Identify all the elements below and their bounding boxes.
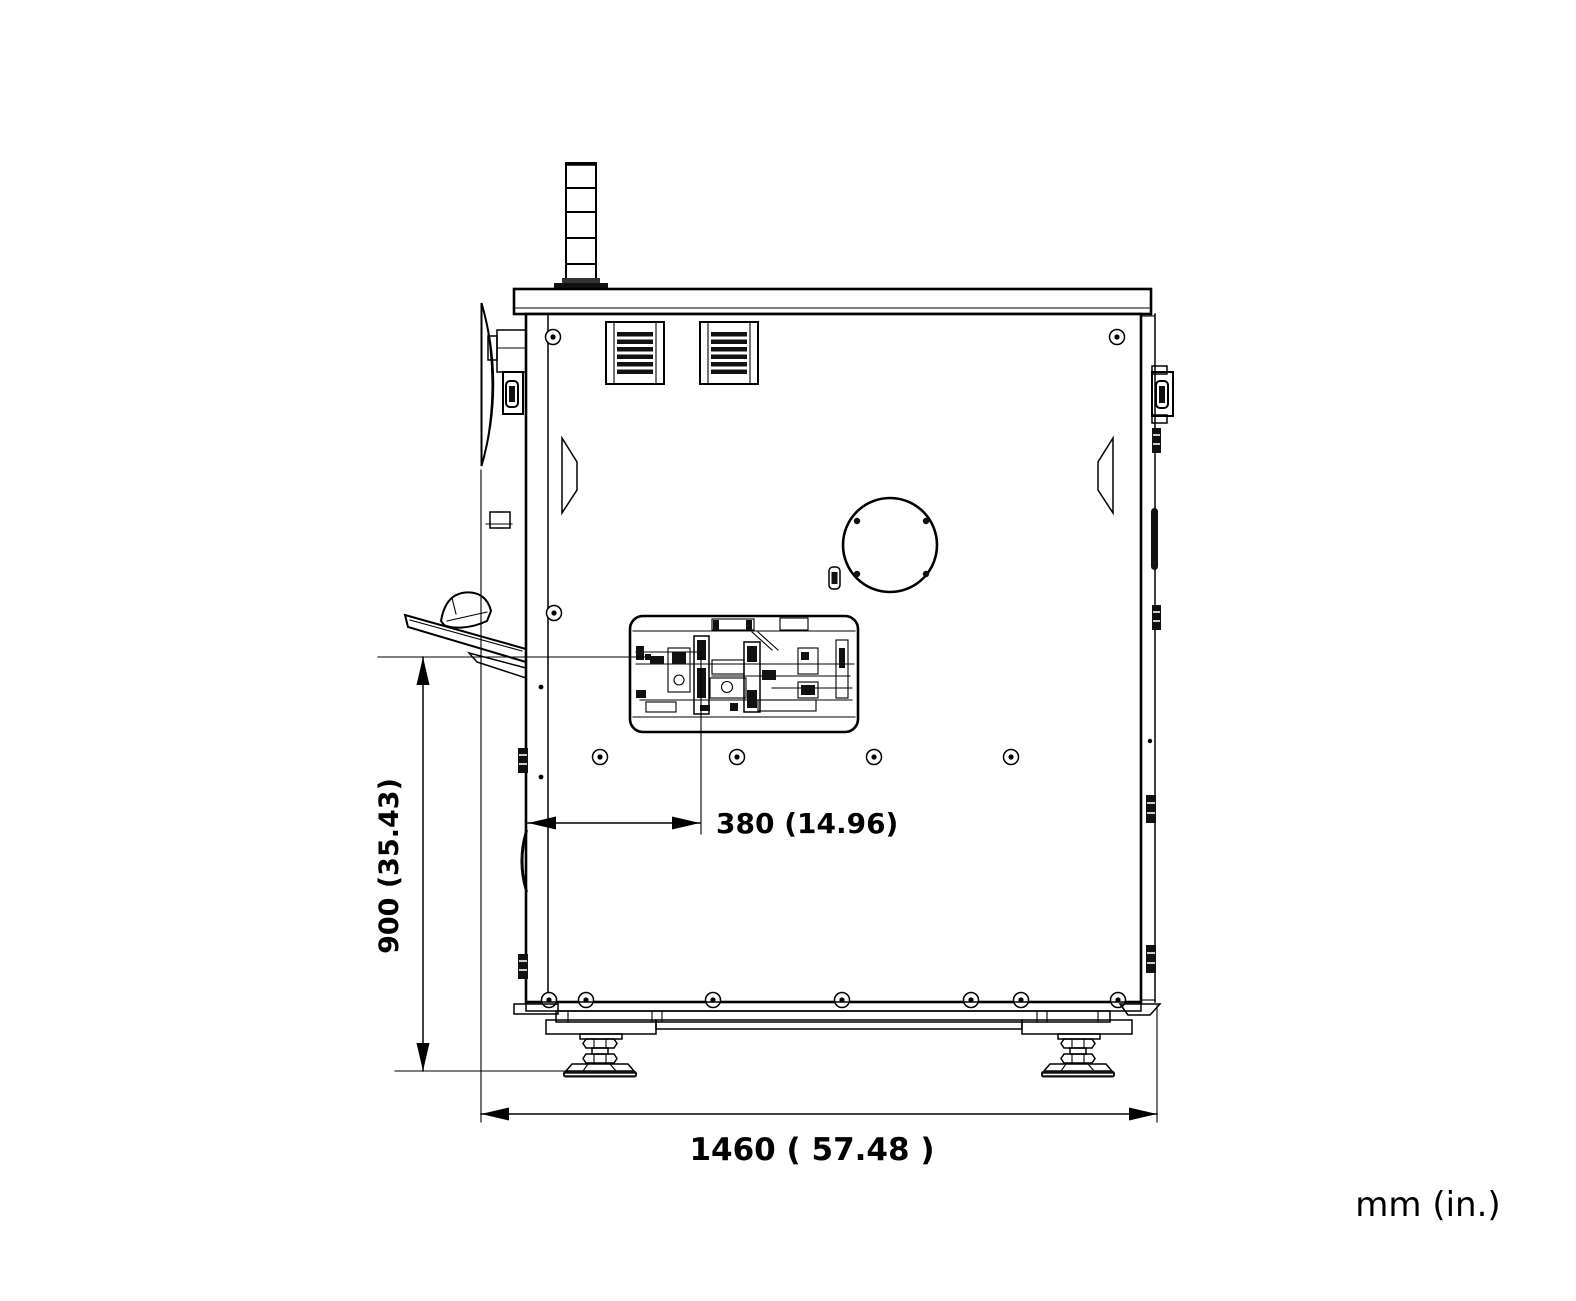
door-stay-bar — [1151, 508, 1158, 570]
side-stub — [490, 512, 510, 528]
mouse — [441, 592, 491, 627]
hinge-icon — [1152, 605, 1161, 630]
signal-tower — [554, 163, 608, 291]
leveling-foot-left — [563, 1034, 637, 1078]
units-note: mm (in.) — [1355, 1185, 1500, 1225]
machine-dimension-drawing: 900 (35.43) 380 (14.96) 1460 ( 57.48 ) m… — [0, 0, 1576, 1301]
leveling-foot-right — [1041, 1034, 1115, 1078]
right-edge-hardware — [1146, 366, 1173, 973]
cabinet-body — [526, 314, 1141, 1002]
reference-dot — [645, 654, 651, 660]
top-lid — [514, 289, 1151, 314]
hinge-icon — [1152, 428, 1161, 453]
height-dimension-label: 900 (35.43) — [374, 778, 405, 954]
hinge-icon — [518, 748, 528, 773]
hinge-icon — [518, 954, 528, 979]
hinge-icon — [1146, 945, 1156, 973]
latch-right — [1152, 366, 1173, 423]
machine-base — [514, 1002, 1160, 1078]
machine-side-view — [405, 163, 1173, 1078]
height-dimension: 900 (35.43) — [374, 657, 430, 1071]
hinge-icon — [1146, 795, 1156, 823]
drawing-canvas: 900 (35.43) 380 (14.96) 1460 ( 57.48 ) m… — [0, 0, 1576, 1301]
width-dimension-label: 1460 ( 57.48 ) — [689, 1132, 934, 1168]
offset-dimension-label: 380 (14.96) — [716, 807, 898, 840]
